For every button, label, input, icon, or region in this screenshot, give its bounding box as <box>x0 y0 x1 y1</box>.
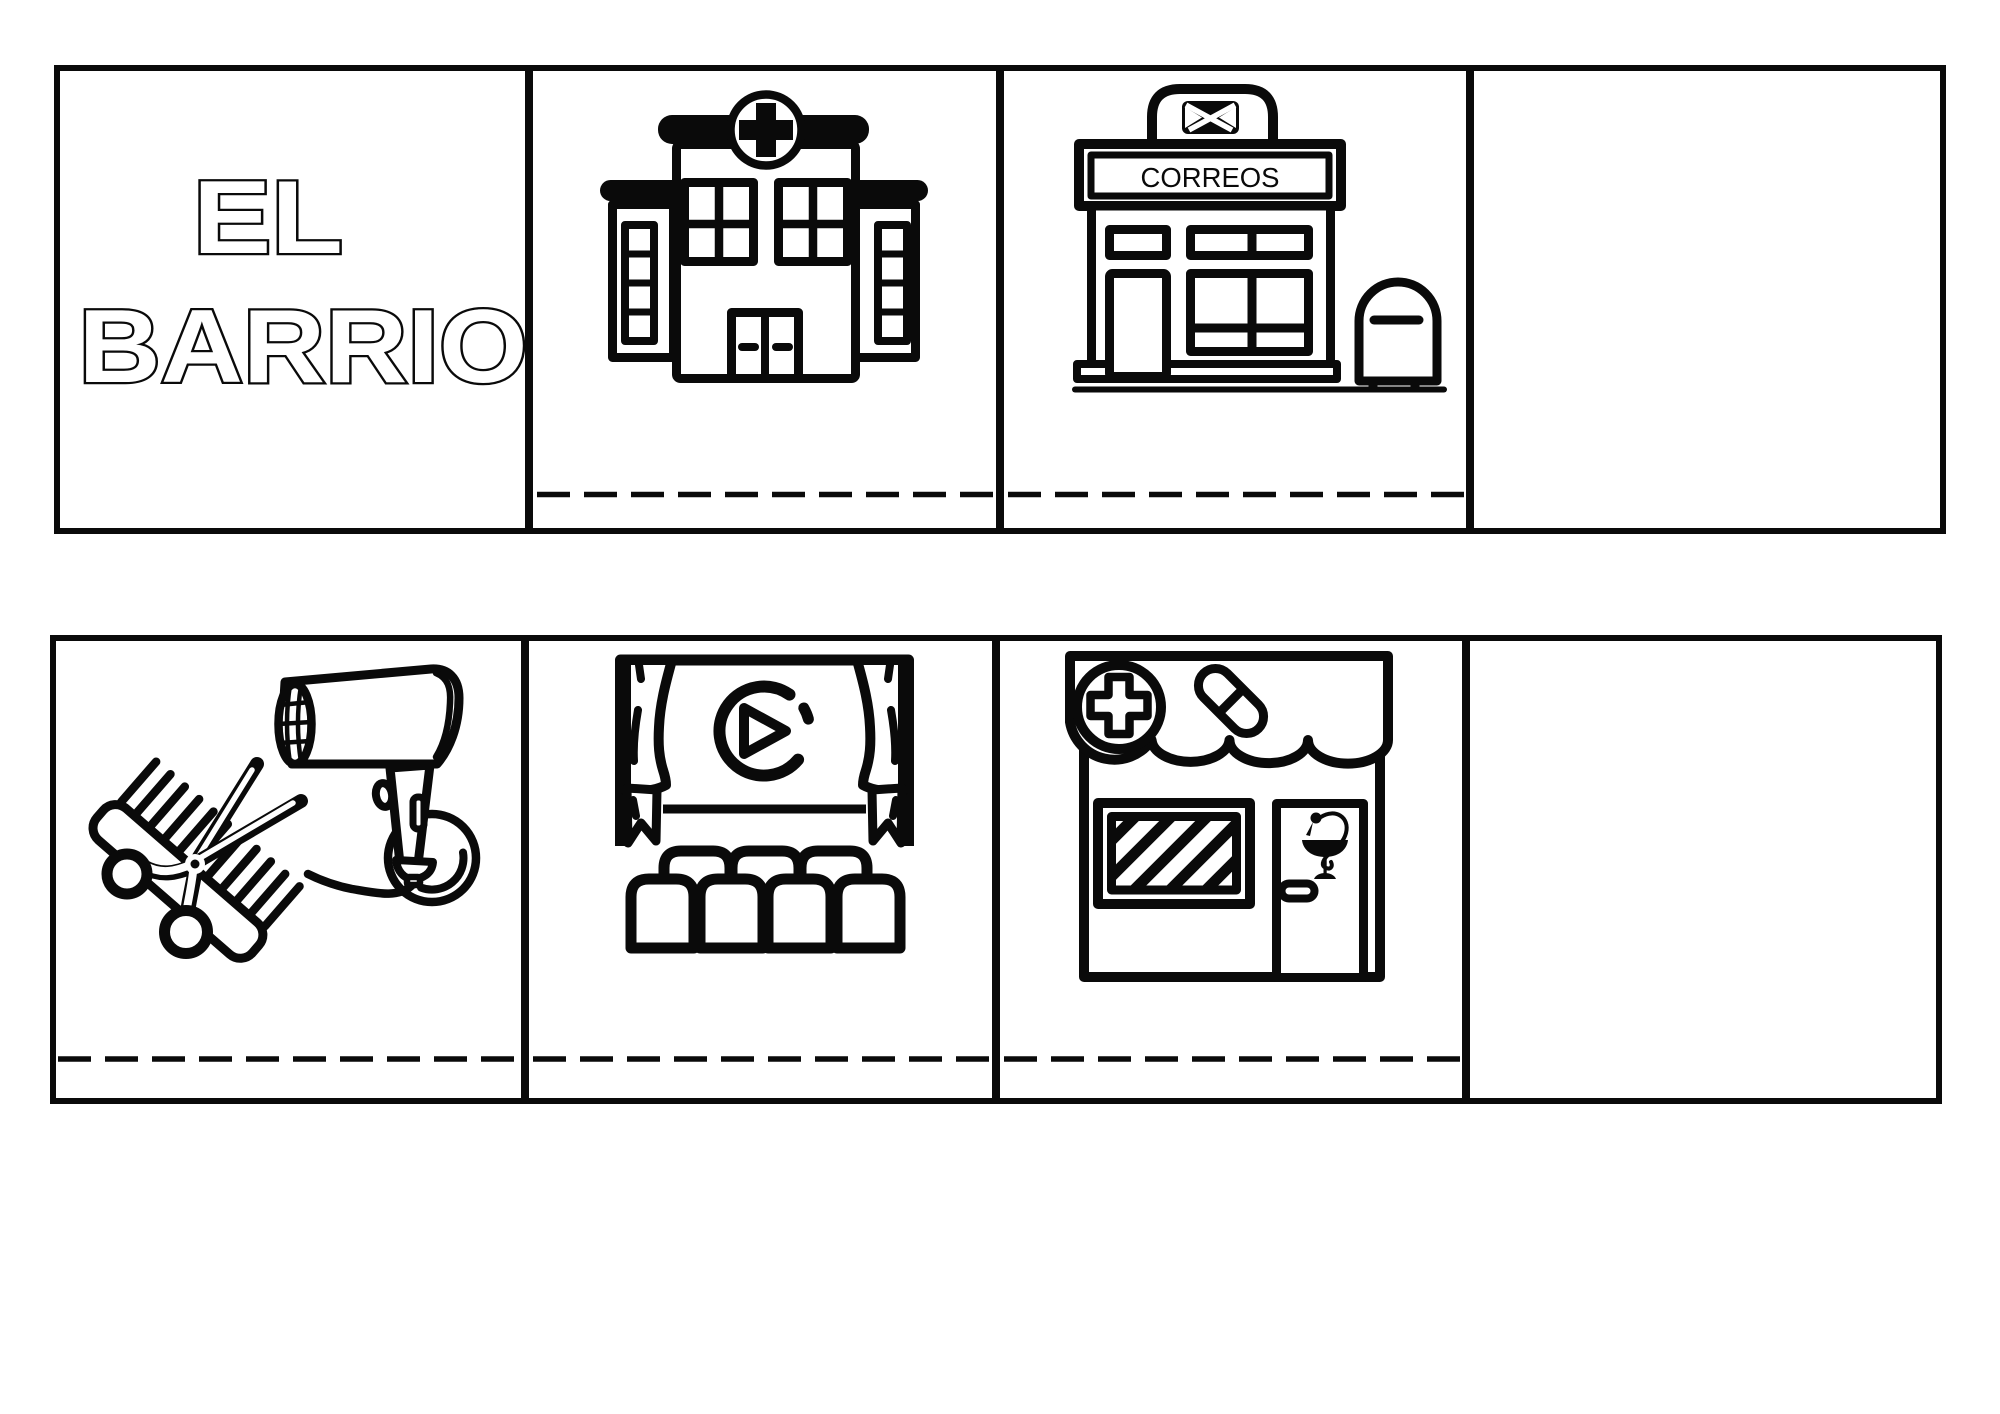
svg-text:CORREOS: CORREOS <box>1140 162 1279 193</box>
svg-text:EL: EL <box>193 160 343 276</box>
svg-text:BARRIO: BARRIO <box>79 289 528 405</box>
